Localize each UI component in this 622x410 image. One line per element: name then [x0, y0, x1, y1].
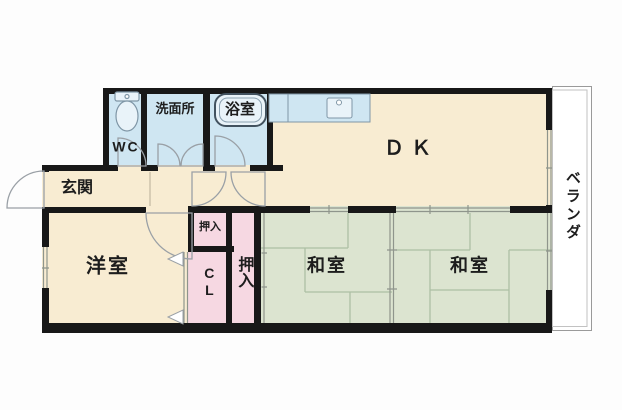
- western-room-label: 洋室: [86, 257, 130, 278]
- wall-oshiire-right: [254, 206, 261, 333]
- closet-upper-label: 押入: [199, 222, 221, 234]
- washroom-label: 洗面所: [155, 102, 194, 116]
- floor-plan: WC 洗面所 浴室 玄関 ＤＫ 洋室 押入 CL 押入 和室 和室 ベランダ: [0, 0, 622, 410]
- wall-washroom-bathroom: [203, 88, 210, 171]
- bathroom-label: 浴室: [225, 102, 255, 118]
- wall-wetband-bottom-4: [250, 165, 283, 171]
- wall-wc-washroom: [141, 88, 147, 171]
- wc-label: WC: [112, 140, 139, 155]
- toilet-flush-button: [125, 95, 129, 99]
- floor-plan-drawing: [0, 0, 622, 410]
- japanese-room-right-label: 和室: [450, 257, 490, 276]
- wall-dk-bottom-2: [348, 206, 396, 213]
- wall-right-upper: [546, 88, 552, 130]
- wall-entrance-bottom: [42, 207, 146, 213]
- wall-wetband-bottom-3: [203, 165, 215, 171]
- closet-cl-label: CL: [202, 265, 217, 299]
- wall-bottom: [42, 323, 552, 333]
- wall-top: [103, 88, 552, 94]
- toilet-icon: [115, 92, 139, 131]
- wall-closets-top: [188, 206, 261, 213]
- veranda-label: ベランダ: [564, 170, 580, 242]
- kitchen-faucet: [337, 100, 342, 105]
- wall-right-middle: [546, 205, 552, 213]
- toilet-bowl: [116, 101, 138, 131]
- closet-main-label: 押入: [235, 256, 252, 288]
- kitchen-counter-top: [269, 94, 370, 122]
- kitchen-counter: [269, 94, 370, 122]
- wall-left-upper: [42, 208, 49, 247]
- wall-cl-oshiire-divider: [226, 206, 232, 333]
- wall-entrance-top: [42, 165, 109, 171]
- wall-dk-bottom-1: [254, 206, 310, 213]
- wall-dk-bottom-3: [510, 206, 552, 213]
- dk-label: ＤＫ: [384, 139, 438, 160]
- entrance-label: 玄関: [61, 181, 93, 198]
- wall-wc-left: [103, 88, 109, 171]
- entrance-door-arc: [7, 171, 44, 208]
- japanese-room-left-label: 和室: [307, 257, 347, 276]
